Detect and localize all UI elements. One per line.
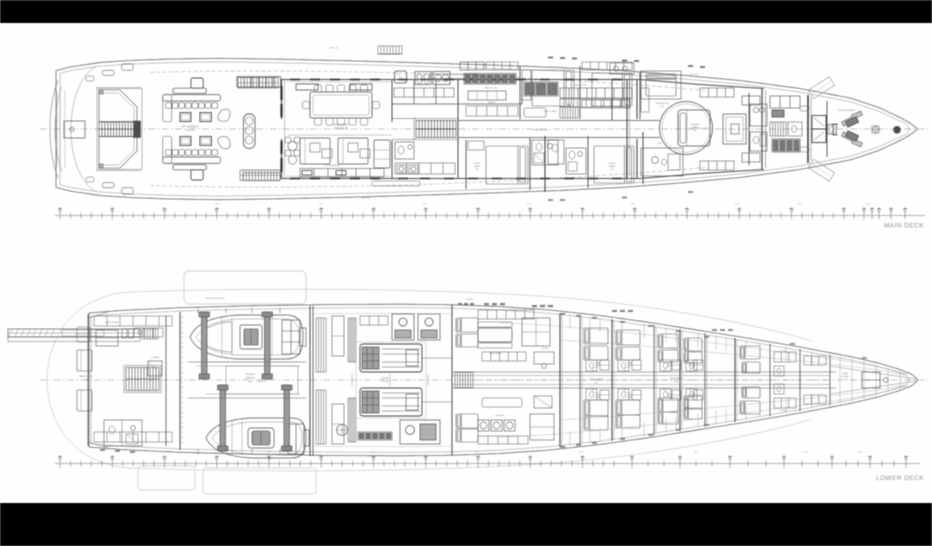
svg-text:ESCAPE: ESCAPE <box>467 298 475 301</box>
svg-text:CREW AREA: CREW AREA <box>589 378 603 381</box>
svg-text:LOWER DECK: LOWER DECK <box>876 475 924 482</box>
svg-text:AFT SUNDECK: AFT SUNDECK <box>182 126 199 129</box>
svg-text:GUEST: GUEST <box>608 163 616 165</box>
svg-text:SB/DOOR: SB/DOOR <box>258 381 267 383</box>
svg-text:CABIN: CABIN <box>609 165 616 168</box>
svg-text:ROOM: ROOM <box>382 381 389 383</box>
svg-text:EXT 101: EXT 101 <box>362 198 371 200</box>
svg-text:GARAGE: GARAGE <box>245 376 255 379</box>
svg-text:FOREDECK AREA: FOREDECK AREA <box>837 109 855 112</box>
svg-text:EXT 110: EXT 110 <box>690 74 698 76</box>
svg-text:OWNER'S: OWNER'S <box>690 124 700 126</box>
svg-text:100: 100 <box>693 130 696 132</box>
svg-text:GALLEY 100: GALLEY 100 <box>485 87 499 90</box>
svg-text:LOUNGE AREA: LOUNGE AREA <box>325 164 341 167</box>
svg-text:100: 100 <box>84 379 87 381</box>
svg-text:LOCKER: LOCKER <box>841 376 850 378</box>
svg-text:CABIN: CABIN <box>692 126 699 129</box>
svg-text:ENGINE: ENGINE <box>381 378 390 380</box>
svg-text:CREW AREA: CREW AREA <box>669 377 683 380</box>
svg-text:100: 100 <box>844 379 847 381</box>
svg-text:BEACH CLUB: BEACH CLUB <box>79 375 93 378</box>
svg-text:DRESSING RM: DRESSING RM <box>655 103 669 105</box>
svg-text:CORRIDOR 100: CORRIDOR 100 <box>533 130 549 132</box>
svg-text:STORAGE: STORAGE <box>151 356 160 359</box>
svg-text:EXT 110: EXT 110 <box>330 48 339 50</box>
svg-text:100: 100 <box>661 106 664 108</box>
svg-text:SPARE TENDER: SPARE TENDER <box>105 321 120 324</box>
svg-text:CHAIN: CHAIN <box>842 372 849 375</box>
svg-text:OFFICE: OFFICE <box>542 348 549 350</box>
svg-text:GUEST: GUEST <box>473 163 481 165</box>
svg-text:LAUNDRY: LAUNDRY <box>495 414 505 417</box>
svg-text:MAIN SALON: MAIN SALON <box>334 127 349 130</box>
svg-text:DINING AREA /: DINING AREA / <box>333 124 349 127</box>
svg-text:TENDER: TENDER <box>246 374 255 376</box>
svg-text:CABIN: CABIN <box>474 165 481 168</box>
svg-text:PANTRY: PANTRY <box>488 101 496 104</box>
svg-text:MAIN DECK: MAIN DECK <box>884 222 924 229</box>
svg-text:TENDER HATCH OVER: TENDER HATCH OVER <box>205 297 225 300</box>
svg-text:GALLEY 100: GALLEY 100 <box>574 84 587 87</box>
svg-text:LADY: LADY <box>658 142 663 145</box>
svg-text:SWIM PLATFORM: SWIM PLATFORM <box>75 333 91 336</box>
svg-text:EXT 100: EXT 100 <box>186 130 195 132</box>
svg-text:GUEST CABIN: GUEST CABIN <box>543 110 557 113</box>
